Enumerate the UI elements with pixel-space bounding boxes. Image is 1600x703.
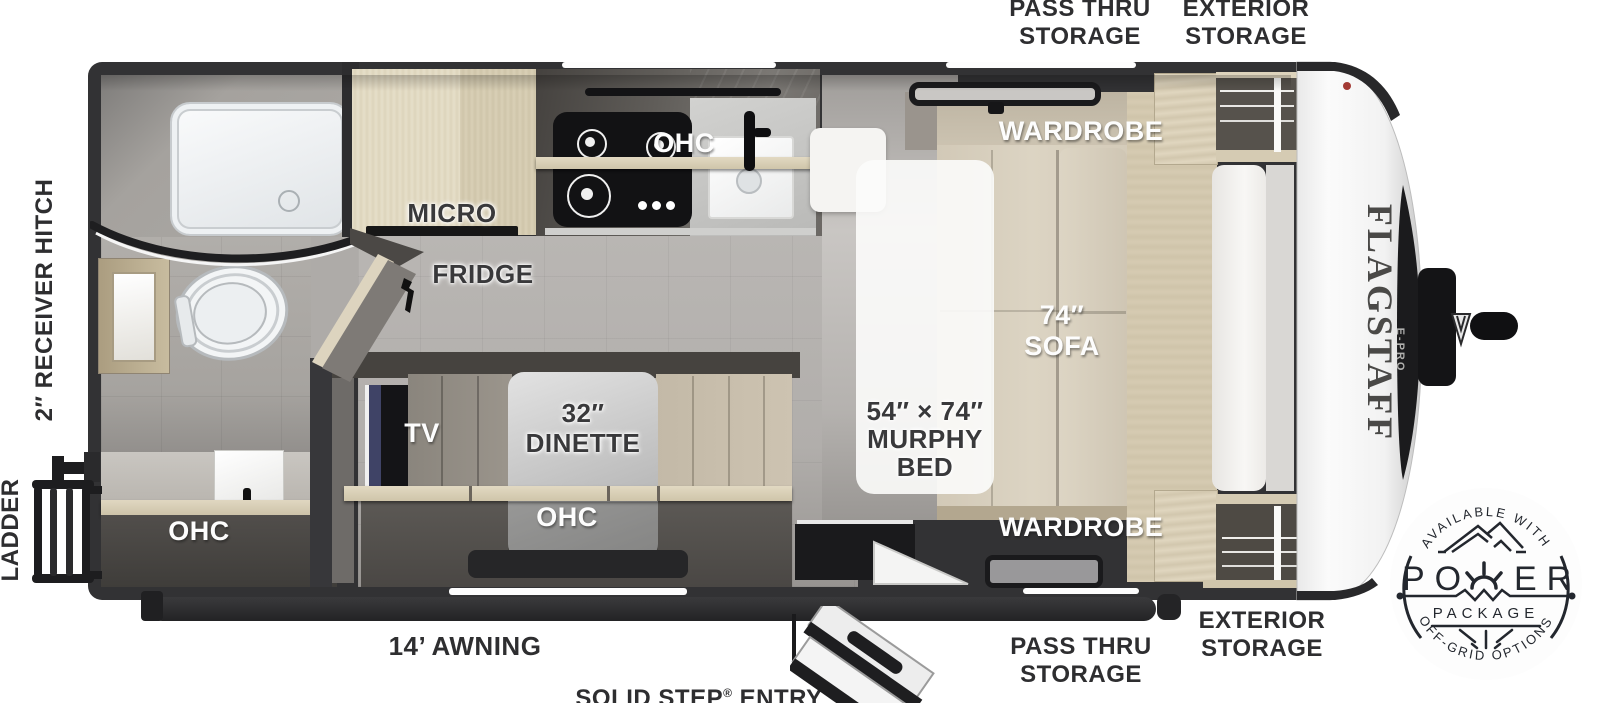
svg-text:E-PRO: E-PRO [1394, 328, 1406, 373]
svg-text:ER: ER [1514, 560, 1581, 598]
svg-text:PACKAGE: PACKAGE [1433, 605, 1539, 622]
svg-text:FLAGSTAFF: FLAGSTAFF [1360, 204, 1400, 442]
